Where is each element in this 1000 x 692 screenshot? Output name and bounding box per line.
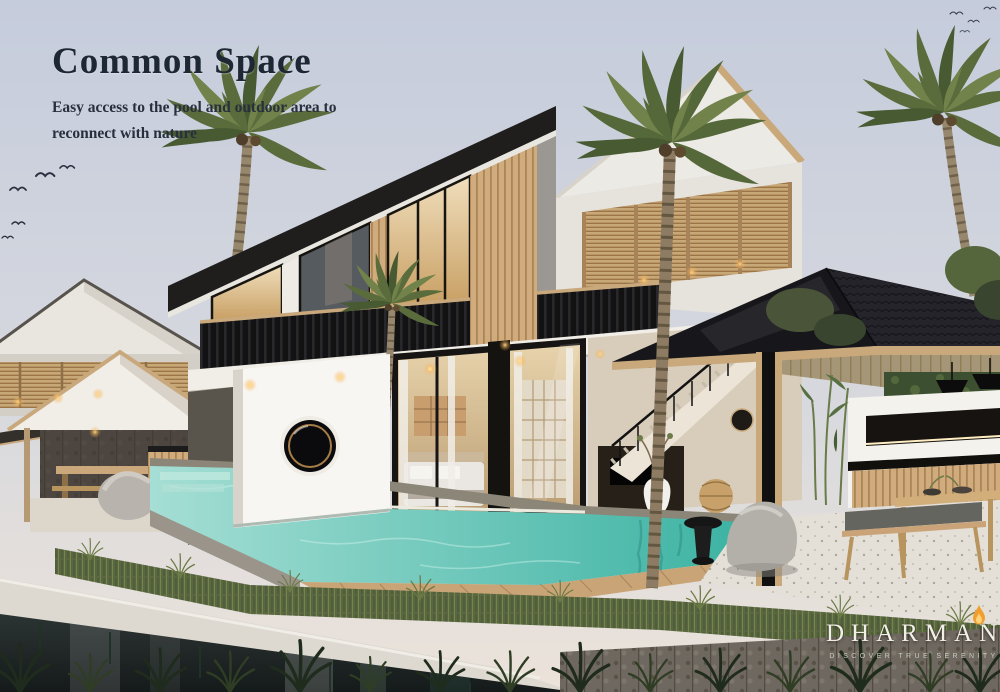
title-block: Common Space Easy access to the pool and… [52,40,392,148]
outdoor-kitchen [848,390,1000,508]
flame-icon [972,605,986,626]
bedroom-artwork [414,396,466,436]
page-subtitle-line2: reconnect with nature [52,121,392,147]
porthole-wall [233,354,390,528]
page-subtitle-line1: Easy access to the pool and outdoor area… [52,95,392,121]
poster: Common Space Easy access to the pool and… [0,0,1000,692]
brand-logo: DHARMAN DISCOVER TRUE SERENITY [826,620,1000,660]
wood-slat-column [470,145,537,346]
brand-tagline: DISCOVER TRUE SERENITY [826,653,1000,660]
page-title: Common Space [52,40,392,83]
porthole-window-icon [280,416,340,476]
rattan-pouf [699,479,733,513]
wall-decor-round [731,409,753,431]
